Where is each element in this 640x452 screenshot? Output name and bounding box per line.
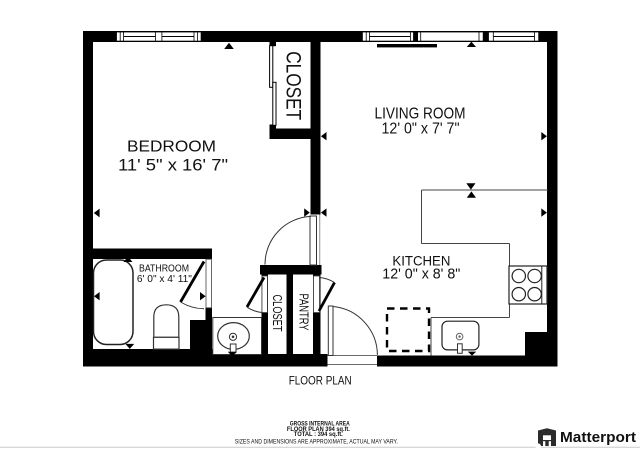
svg-text:TOTAL : 394 sq.ft.: TOTAL : 394 sq.ft.: [294, 431, 343, 438]
svg-text:CLOSET: CLOSET: [270, 295, 284, 332]
svg-text:BEDROOM: BEDROOM: [127, 139, 216, 156]
svg-text:12' 0" x 8' 8": 12' 0" x 8' 8": [382, 266, 460, 283]
svg-text:PANTRY: PANTRY: [297, 294, 311, 331]
svg-text:12' 0" x 7' 7": 12' 0" x 7' 7": [382, 121, 460, 138]
svg-text:FLOOR PLAN: FLOOR PLAN: [289, 373, 352, 387]
svg-text:SIZES AND DIMENSIONS ARE APPRO: SIZES AND DIMENSIONS ARE APPROXIMATE, AC…: [235, 439, 398, 446]
svg-text:CLOSET: CLOSET: [281, 51, 305, 120]
svg-text:BATHROOM: BATHROOM: [139, 263, 189, 274]
svg-text:Matterport: Matterport: [560, 429, 636, 446]
svg-text:6' 0" x 4' 11": 6' 0" x 4' 11": [137, 274, 192, 285]
svg-text:11' 5" x 16' 7": 11' 5" x 16' 7": [118, 157, 228, 175]
